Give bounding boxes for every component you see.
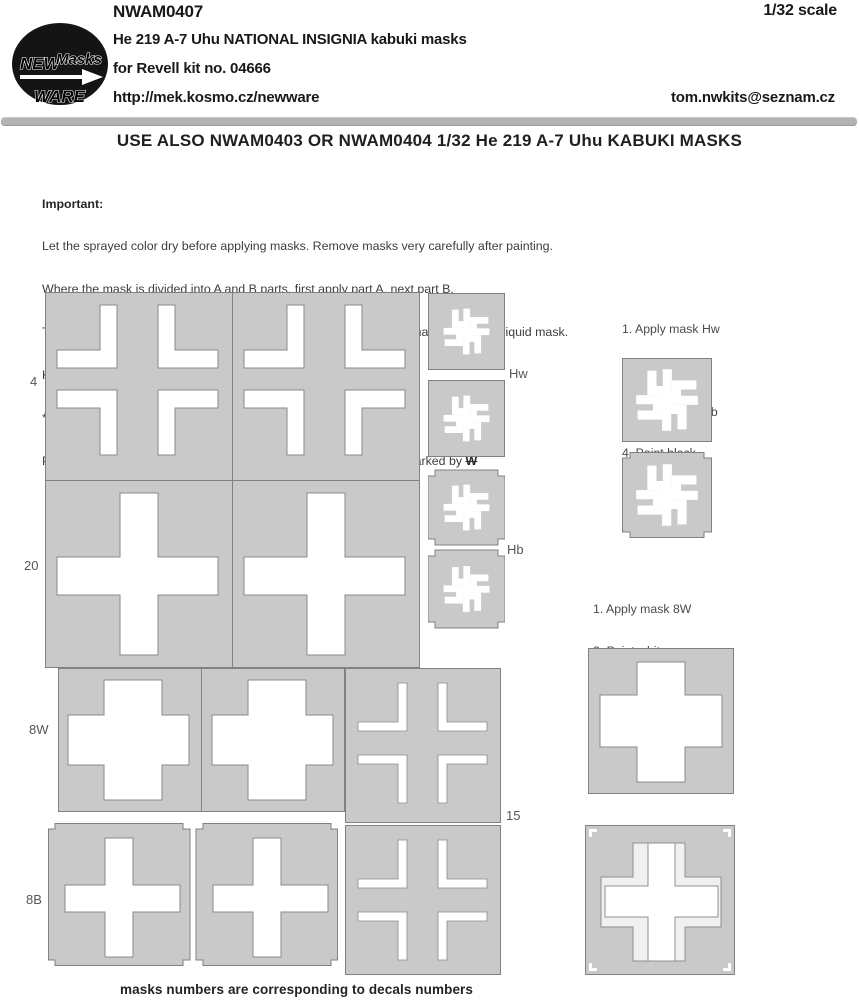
product-code: NWAM0407 [113,2,203,22]
mask-large-8w [588,648,734,794]
divider-bar [1,117,857,126]
scale-label: 1/32 scale [763,2,837,20]
mask-panels-corner-trims [345,668,501,975]
footer-note: masks numbers are corresponding to decal… [120,982,473,997]
mask-row-8w [58,668,345,812]
mask-column-tail-insignia [428,293,505,635]
product-title: He 219 A-7 Uhu NATIONAL INSIGNIA kabuki … [113,31,467,48]
mask-large-8b [585,825,735,975]
label-row-8w: 8W [29,722,49,737]
use-also-banner: USE ALSO NWAM0403 OR NWAM0404 1/32 He 21… [0,131,859,151]
instruction-step: 1. Apply mask Hw [622,323,720,337]
important-heading: Important: [42,197,568,211]
label-row-8b: 8B [26,892,42,907]
important-line: Let the sprayed color dry before applyin… [42,239,568,253]
logo-word-masks: Masks [56,51,102,68]
mask-panel-corners-and-crosses [45,292,420,668]
instruction-sheet: NEW Masks WARE NWAM0407 1/32 scale He 21… [0,0,859,1000]
label-hw: Hw [509,366,528,381]
logo-word-ware: WARE [34,87,86,106]
label-panel-15: 15 [506,808,520,823]
label-panel-4: 4 [30,374,37,389]
label-panel-20: 20 [24,558,38,573]
mask-large-tail-insignia [622,358,712,538]
label-hb: Hb [507,542,524,557]
kit-reference: for Revell kit no. 04666 [113,60,271,77]
website-url: http://mek.kosmo.cz/newware [113,89,319,106]
mask-row-8b [48,823,338,966]
newware-logo: NEW Masks WARE [8,20,112,108]
contact-email: tom.nwkits@seznam.cz [671,89,835,106]
instruction-step: 1. Apply mask 8W [593,603,691,617]
